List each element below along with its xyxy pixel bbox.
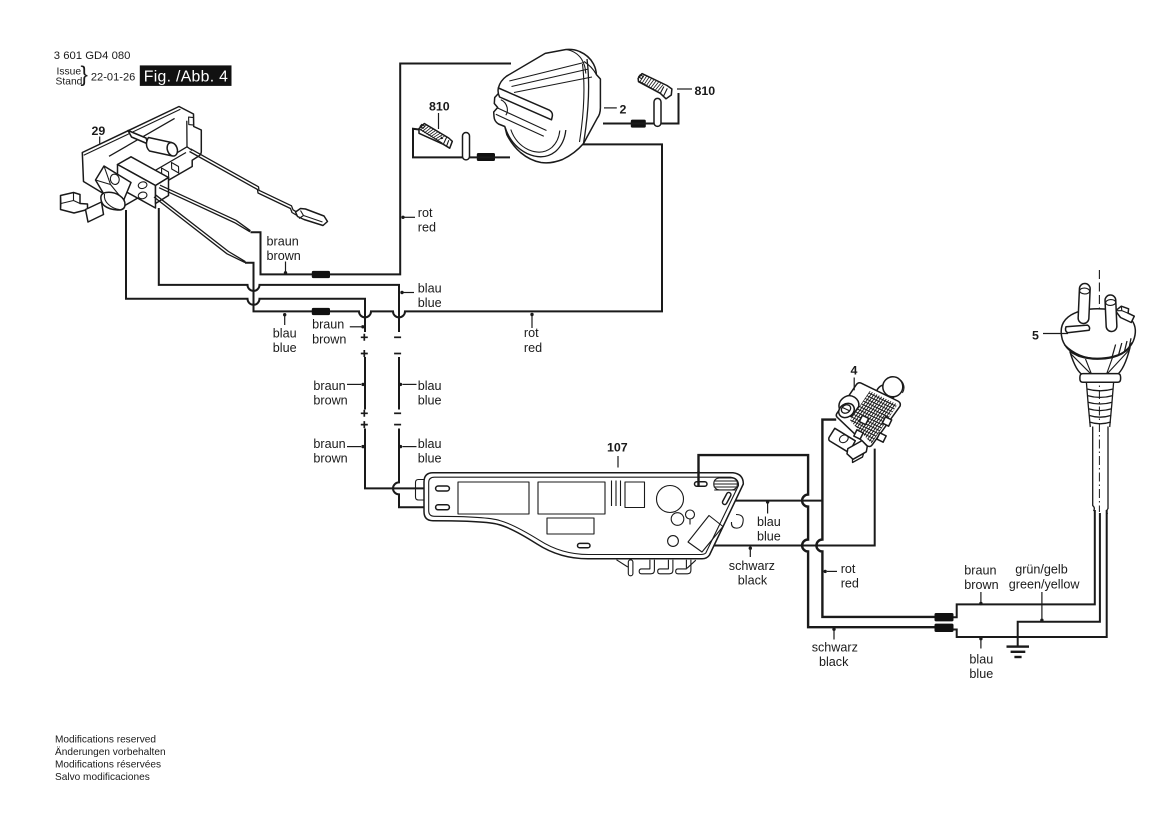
svg-text:rot: rot <box>841 562 856 576</box>
svg-text:rot: rot <box>418 206 433 220</box>
svg-text:Änderungen vorbehalten: Änderungen vorbehalten <box>55 746 166 758</box>
svg-text:brown: brown <box>313 394 347 408</box>
svg-text:Stand: Stand <box>56 76 83 87</box>
svg-text:blue: blue <box>969 667 993 681</box>
svg-text:braun: braun <box>267 235 299 249</box>
svg-text:blau: blau <box>273 326 297 340</box>
svg-text:braun: braun <box>312 318 344 332</box>
svg-text:Fig. /Abb. 4: Fig. /Abb. 4 <box>144 68 228 85</box>
svg-text:blue: blue <box>273 341 297 355</box>
svg-text:blau: blau <box>418 379 442 393</box>
svg-text:Modifications réservées: Modifications réservées <box>55 760 161 771</box>
svg-text:braun: braun <box>964 563 996 577</box>
svg-text:brown: brown <box>312 332 346 346</box>
svg-text:blue: blue <box>418 451 442 465</box>
svg-text:blue: blue <box>757 530 781 544</box>
svg-text:red: red <box>841 577 859 591</box>
svg-text:rot: rot <box>524 326 539 340</box>
svg-text:blau: blau <box>969 652 993 666</box>
svg-text:blue: blue <box>418 394 442 408</box>
svg-text:blau: blau <box>757 515 781 529</box>
svg-text:black: black <box>738 574 768 588</box>
svg-text:Salvo modificaciones: Salvo modificaciones <box>55 772 150 783</box>
svg-text:5: 5 <box>1032 329 1039 343</box>
svg-text:brown: brown <box>267 249 301 263</box>
svg-text:}: } <box>81 62 88 87</box>
svg-text:brown: brown <box>313 451 347 465</box>
svg-text:2: 2 <box>620 103 627 117</box>
svg-text:green/yellow: green/yellow <box>1009 578 1081 592</box>
svg-text:107: 107 <box>607 441 628 455</box>
svg-text:brown: brown <box>964 578 998 592</box>
svg-text:810: 810 <box>429 100 450 114</box>
svg-text:22-01-26: 22-01-26 <box>91 72 135 84</box>
svg-text:schwarz: schwarz <box>812 640 858 654</box>
svg-text:blau: blau <box>418 437 442 451</box>
svg-text:braun: braun <box>313 379 345 393</box>
svg-text:blue: blue <box>418 296 442 310</box>
svg-text:red: red <box>524 341 542 355</box>
svg-text:Modifications reserved: Modifications reserved <box>55 735 156 746</box>
svg-text:schwarz: schwarz <box>729 559 775 573</box>
svg-text:4: 4 <box>851 364 858 378</box>
svg-text:black: black <box>819 655 849 669</box>
svg-text:29: 29 <box>92 124 106 138</box>
svg-text:810: 810 <box>695 84 716 98</box>
svg-text:3 601 GD4 080: 3 601 GD4 080 <box>54 50 131 62</box>
svg-text:red: red <box>418 220 436 234</box>
svg-text:braun: braun <box>313 437 345 451</box>
svg-text:grün/gelb: grün/gelb <box>1015 563 1068 577</box>
svg-text:blau: blau <box>418 282 442 296</box>
